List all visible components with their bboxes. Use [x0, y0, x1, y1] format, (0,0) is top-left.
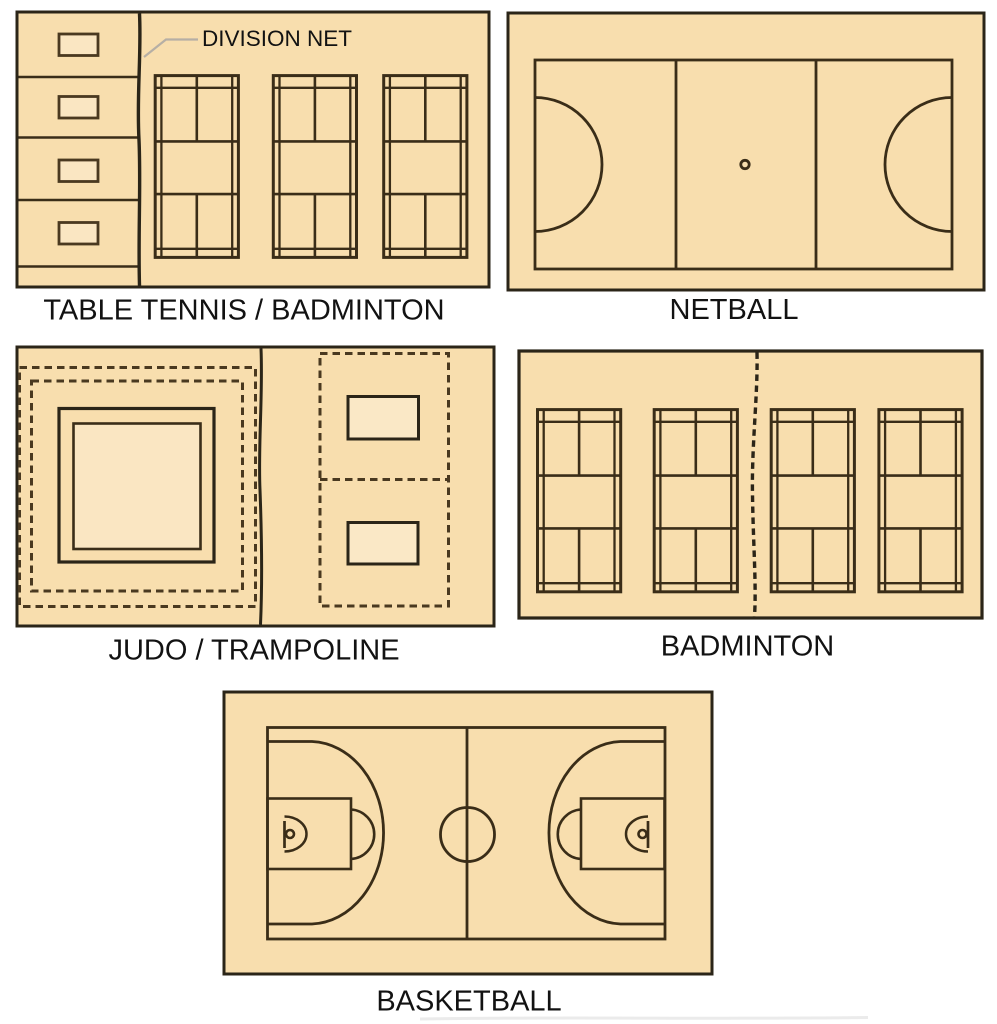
svg-text:JUDO / TRAMPOLINE: JUDO / TRAMPOLINE — [108, 635, 399, 667]
svg-text:NETBALL: NETBALL — [670, 294, 799, 326]
svg-text:BASKETBALL: BASKETBALL — [376, 986, 561, 1018]
svg-text:TABLE TENNIS / BADMINTON: TABLE TENNIS / BADMINTON — [43, 295, 444, 327]
svg-text:DIVISION NET: DIVISION NET — [202, 26, 352, 51]
svg-text:BADMINTON: BADMINTON — [661, 631, 834, 663]
